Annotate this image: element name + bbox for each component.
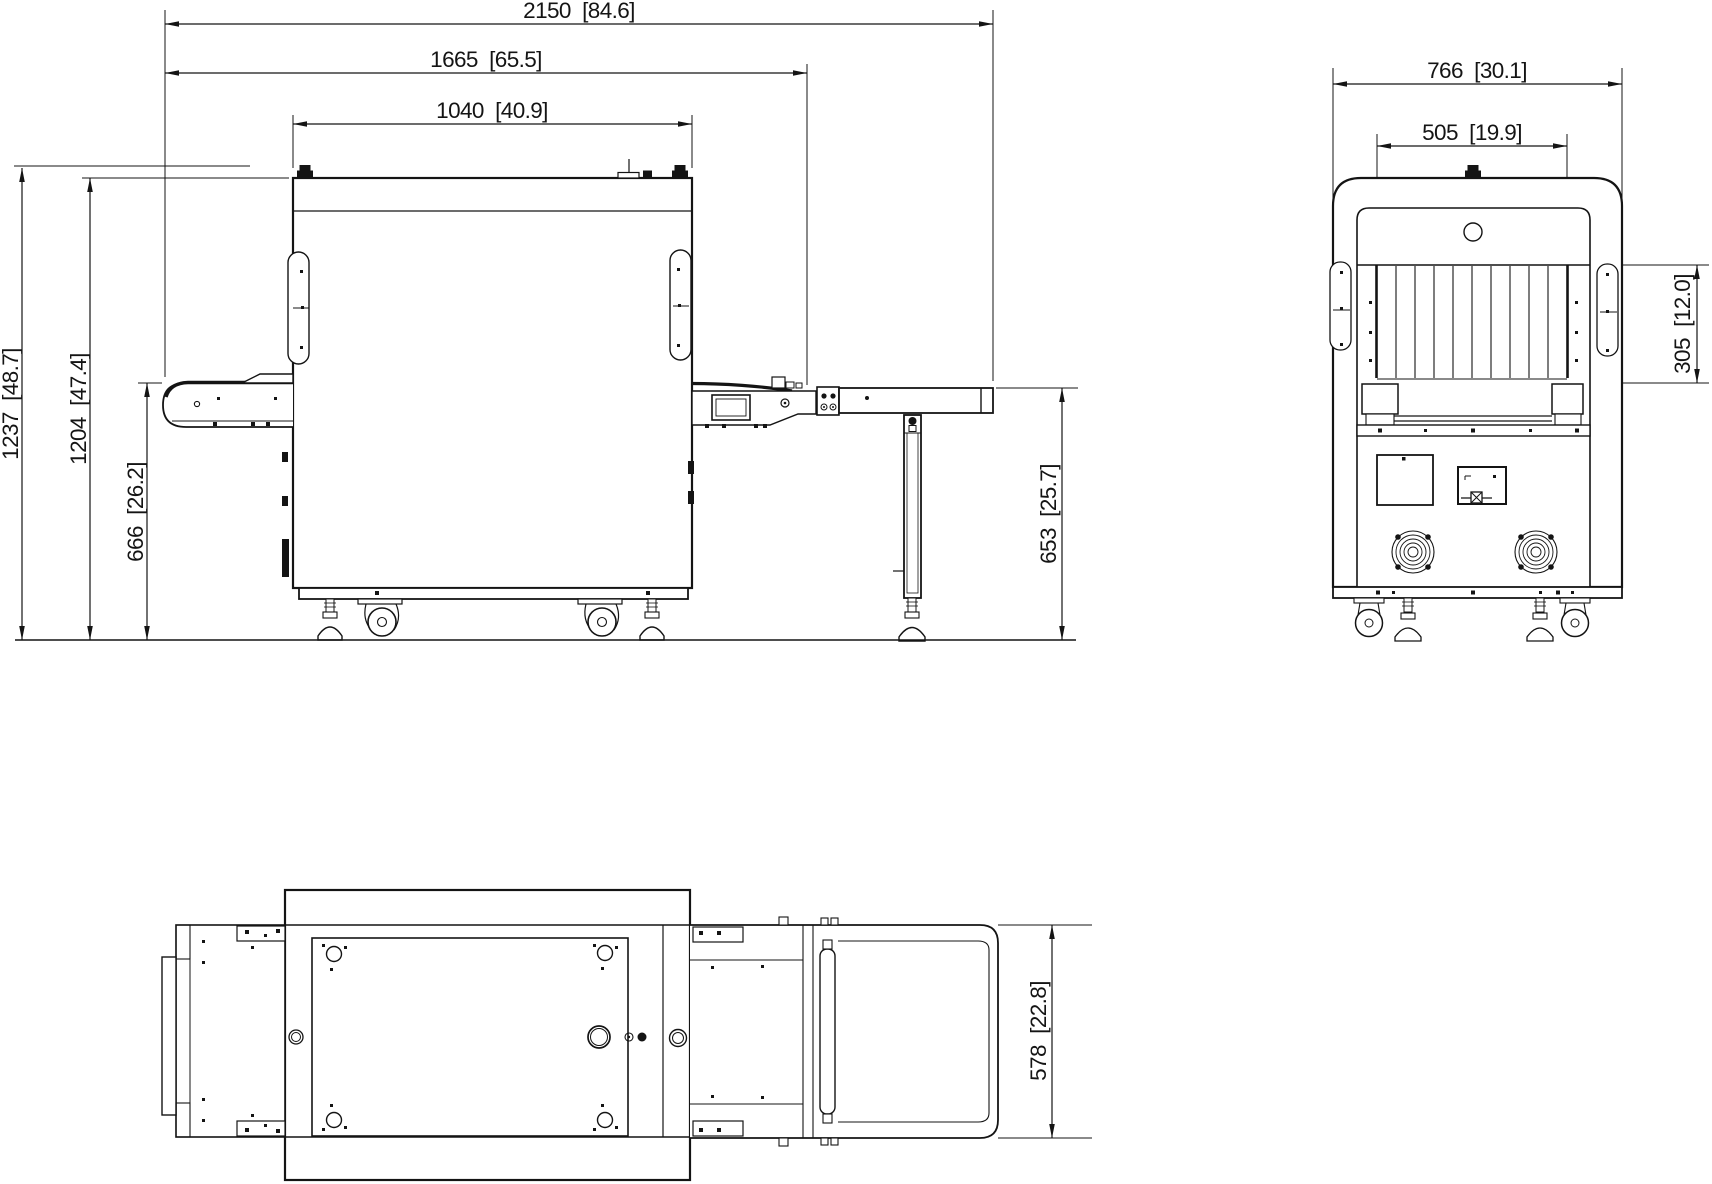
top-entry-conveyor [162,925,285,1137]
dim-overall-length: 2150 [84.6] [523,0,635,23]
technical-drawing: 2150 [84.6] 1665 [65.5] 1040 [40.9] 1237… [0,0,1712,1184]
dim-overall-height: 1237 [48.7] [0,348,23,460]
front-base [1333,587,1622,598]
dim-tunnel-width: 505 [19.9] [1422,120,1522,145]
top-exit-conveyor [690,917,998,1146]
side-cabinet [282,159,694,599]
table-joint-block [817,387,839,415]
dim-table-height: 653 [25.7] [1036,464,1061,564]
dim-cabinet-length: 1040 [40.9] [436,98,548,123]
drawing-sheet: 2150 [84.6] 1665 [65.5] 1040 [40.9] 1237… [0,0,1712,1184]
top-inner-plate [289,938,687,1136]
dim-belt-height: 666 [26.2] [123,462,148,562]
dim-cabinet-height: 1204 [47.4] [66,353,91,465]
front-connector-panel [1458,467,1506,504]
dim-conveyor-width: 578 [22.8] [1026,981,1051,1081]
end-roller [820,940,835,1123]
cabinet-base [299,588,688,599]
dim-overall-width: 766 [30.1] [1427,58,1527,83]
side-door-handle-left [288,252,309,364]
dim-tunnel-height: 305 [12.0] [1670,274,1695,374]
dim-conveyor-length: 1665 [65.5] [430,47,542,72]
side-door-handle-right [670,250,691,360]
top-view: 578 [22.8] [162,890,1092,1180]
front-access-panel [1377,455,1433,505]
side-entry-conveyor [163,374,293,427]
